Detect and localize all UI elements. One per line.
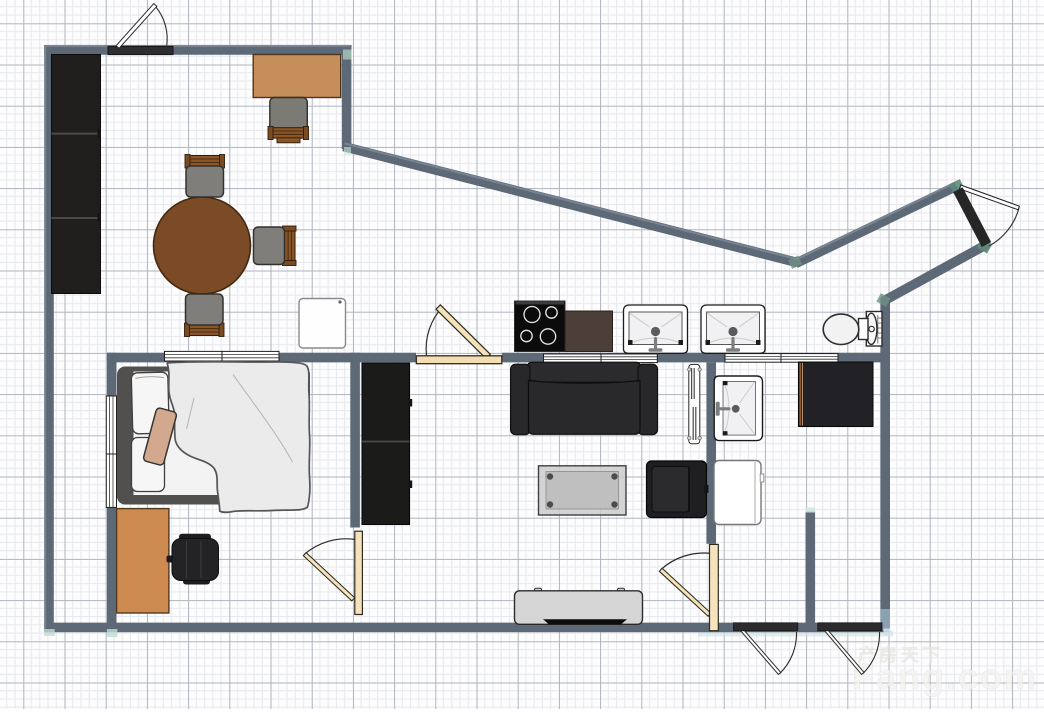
svg-text:Fang.com: Fang.com [852,656,1038,697]
